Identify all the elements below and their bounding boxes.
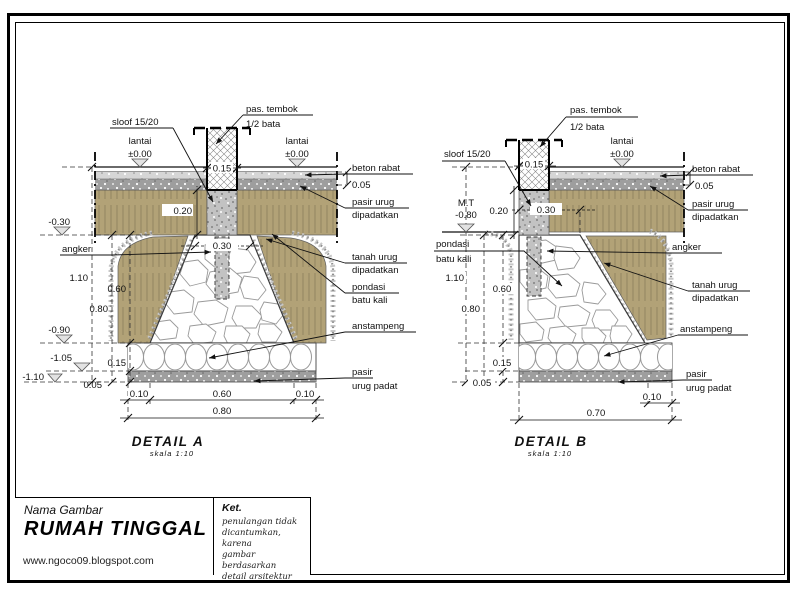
- note-line: penulangan tidak: [222, 517, 310, 528]
- pasir-padat-label-1-a: pasir: [352, 367, 373, 378]
- level-110-a: -1.10: [22, 372, 44, 383]
- level-090-a: -0.90: [48, 325, 70, 336]
- dim-anstampeng-height-b: 0.15: [493, 358, 512, 369]
- detail-b-floor-level: lantai ±0.00: [610, 136, 634, 167]
- dim-wall-width-a: 0.15: [213, 164, 232, 175]
- dim-sand-height-b: 0.05: [473, 378, 492, 389]
- drawing-sheet: 0.15 0.20 0.30 1.10 0.80 0.60 0.15 0.05: [0, 0, 800, 600]
- dim-total-height-a: 1.10: [70, 273, 89, 284]
- title-block-name-cell: Nama Gambar RUMAH TINGGAL www.ngoco09.bl…: [15, 498, 213, 575]
- wall-label-2-b: 1/2 bata: [570, 122, 605, 133]
- tanah-urug-label-2-a: dipadatkan: [352, 265, 398, 276]
- detail-b-ground-level-marker: M.T -0.80: [455, 198, 477, 232]
- wall-label-1-a: pas. tembok: [246, 104, 298, 115]
- pasir-padat-label-2-b: urug padat: [686, 383, 732, 394]
- dim-sand-height-a: 0.05: [84, 380, 103, 391]
- pasir-urug-label-1-a: pasir urug: [352, 197, 394, 208]
- detail-a: 0.15 0.20 0.30 1.10 0.80 0.60 0.15 0.05: [22, 104, 416, 458]
- lantai-level-label: ±0.00: [128, 149, 152, 160]
- detail-b-floor-slab: [549, 167, 684, 190]
- dim-bottom-total-b: 0.70: [587, 408, 606, 419]
- detail-b: 0.15 0.20 0.30 1.10 0.80 0.60: [434, 105, 753, 458]
- dim-sloof-height-b: 0.20: [490, 206, 509, 217]
- dim-pondasi-height-a: 0.60: [108, 284, 127, 295]
- anstampeng-label-a: anstampeng: [352, 321, 404, 332]
- detail-a-sand-base-layer: [128, 371, 316, 382]
- detail-a-scale: skala 1:10: [150, 449, 194, 458]
- note-line: detail arsitektur: [222, 572, 310, 583]
- lantai-label: lantai: [611, 136, 634, 147]
- drawing-name-label: Nama Gambar: [24, 503, 213, 517]
- wall-label-2-a: 1/2 bata: [246, 119, 281, 130]
- detail-a-anstampeng-layer: [123, 343, 317, 371]
- notes-text: penulangan tidak dicantumkan, karena gam…: [222, 517, 310, 583]
- tanah-urug-label-1-a: tanah urug: [352, 252, 397, 263]
- tanah-urug-label-2-b: dipadatkan: [692, 293, 738, 304]
- detail-b-sand-base-layer: [519, 371, 672, 382]
- pondasi-label-2-a: batu kali: [352, 295, 387, 306]
- dim-top-width-b: 0.30: [537, 205, 556, 216]
- dim-bottom-left-a: 0.10: [130, 389, 149, 400]
- title-block-notes-cell: Ket. penulangan tidak dicantumkan, karen…: [213, 498, 310, 575]
- level-105-a: -1.05: [50, 353, 72, 364]
- dim-080-a: 0.80: [90, 304, 109, 315]
- detail-a-floor-level-right: lantai ±0.00: [285, 136, 309, 167]
- dim-top-width-a: 0.30: [213, 241, 232, 252]
- detail-a-sloof: [207, 190, 237, 235]
- angker-label-b: angker: [672, 242, 701, 253]
- project-title: RUMAH TINGGAL: [24, 518, 213, 541]
- sloof-label-b: sloof 15/20: [444, 149, 490, 160]
- note-line: dicantumkan, karena: [222, 528, 310, 550]
- detail-b-anstampeng-layer: [515, 343, 679, 371]
- beton-rabat-label-b: beton rabat: [692, 164, 740, 175]
- detail-b-scale: skala 1:10: [528, 449, 572, 458]
- dim-080-b: 0.80: [462, 304, 481, 315]
- pasir-padat-label-2-a: urug padat: [352, 381, 398, 392]
- lantai-label: lantai: [286, 136, 309, 147]
- wall-label-1-b: pas. tembok: [570, 105, 622, 116]
- pasir-urug-label-2-b: dipadatkan: [692, 212, 738, 223]
- dim-rabat-a: 0.05: [352, 180, 371, 191]
- pondasi-label-1-b: pondasi: [436, 239, 469, 250]
- dim-sloof-height-a: 0.20: [174, 206, 193, 217]
- beton-rabat-label-a: beton rabat: [352, 163, 400, 174]
- dim-wall-width-b: 0.15: [525, 160, 544, 171]
- note-line: gambar berdasarkan: [222, 550, 310, 572]
- dim-pondasi-height-b: 0.60: [493, 284, 512, 295]
- detail-a-level-markers: -0.30 -0.90 -1.05 -1.10: [22, 217, 90, 383]
- dim-total-height-b: 1.10: [446, 273, 465, 284]
- dim-bottom-mid-a: 0.60: [213, 389, 232, 400]
- lantai-level-label: ±0.00: [285, 149, 309, 160]
- pondasi-label-1-a: pondasi: [352, 282, 385, 293]
- pasir-urug-label-2-a: dipadatkan: [352, 210, 398, 221]
- anstampeng-label-b: anstampeng: [680, 324, 732, 335]
- mt-label: M.T: [458, 198, 475, 209]
- dim-anstampeng-height-a: 0.15: [108, 358, 127, 369]
- angker-label-a: angker: [62, 244, 91, 255]
- lantai-level-label: ±0.00: [610, 149, 634, 160]
- lantai-label: lantai: [129, 136, 152, 147]
- detail-a-title: DETAIL A: [132, 434, 205, 449]
- dim-bottom-right-a: 0.10: [296, 389, 315, 400]
- title-block: Nama Gambar RUMAH TINGGAL www.ngoco09.bl…: [15, 497, 311, 575]
- detail-b-anchor: [527, 237, 541, 296]
- tanah-urug-label-1-b: tanah urug: [692, 280, 737, 291]
- website-text: www.ngoco09.blogspot.com: [23, 555, 154, 567]
- mt-level-label: -0.80: [455, 210, 477, 221]
- dim-bottom-total-a: 0.80: [213, 406, 232, 417]
- pondasi-label-2-b: batu kali: [436, 254, 471, 265]
- sloof-label-a: sloof 15/20: [112, 117, 158, 128]
- detail-a-floor-level-left: lantai ±0.00: [128, 136, 152, 167]
- dim-bottom-right-b: 0.10: [643, 392, 662, 403]
- dim-rabat-b: 0.05: [695, 181, 714, 192]
- pasir-padat-label-1-b: pasir: [686, 369, 707, 380]
- pasir-urug-label-1-b: pasir urug: [692, 199, 734, 210]
- notes-title: Ket.: [222, 502, 310, 514]
- detail-b-title: DETAIL B: [514, 434, 587, 449]
- level-030-a: -0.30: [48, 217, 70, 228]
